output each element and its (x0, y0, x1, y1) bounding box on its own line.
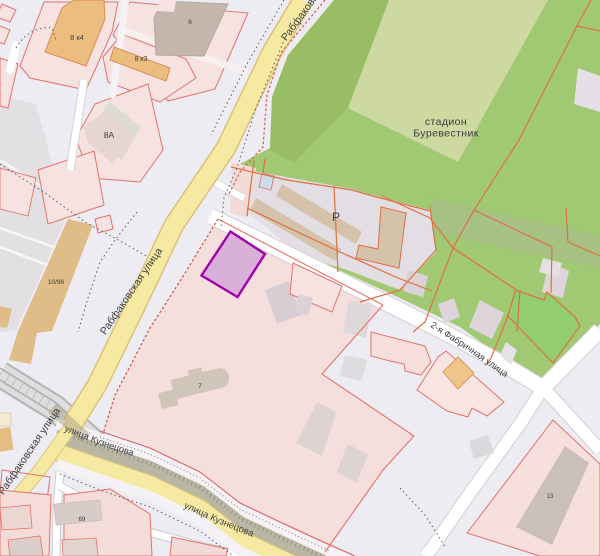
svg-text:8 к3: 8 к3 (135, 56, 148, 63)
svg-text:13: 13 (547, 494, 554, 500)
svg-text:8 к4: 8 к4 (70, 33, 84, 42)
svg-text:10/96: 10/96 (48, 279, 65, 286)
svg-text:6: 6 (188, 19, 192, 26)
svg-text:Буревестник: Буревестник (413, 128, 479, 140)
svg-text:69: 69 (79, 517, 86, 523)
svg-text:стадион: стадион (425, 116, 467, 128)
svg-text:8А: 8А (104, 130, 115, 140)
svg-text:Р: Р (332, 210, 340, 224)
